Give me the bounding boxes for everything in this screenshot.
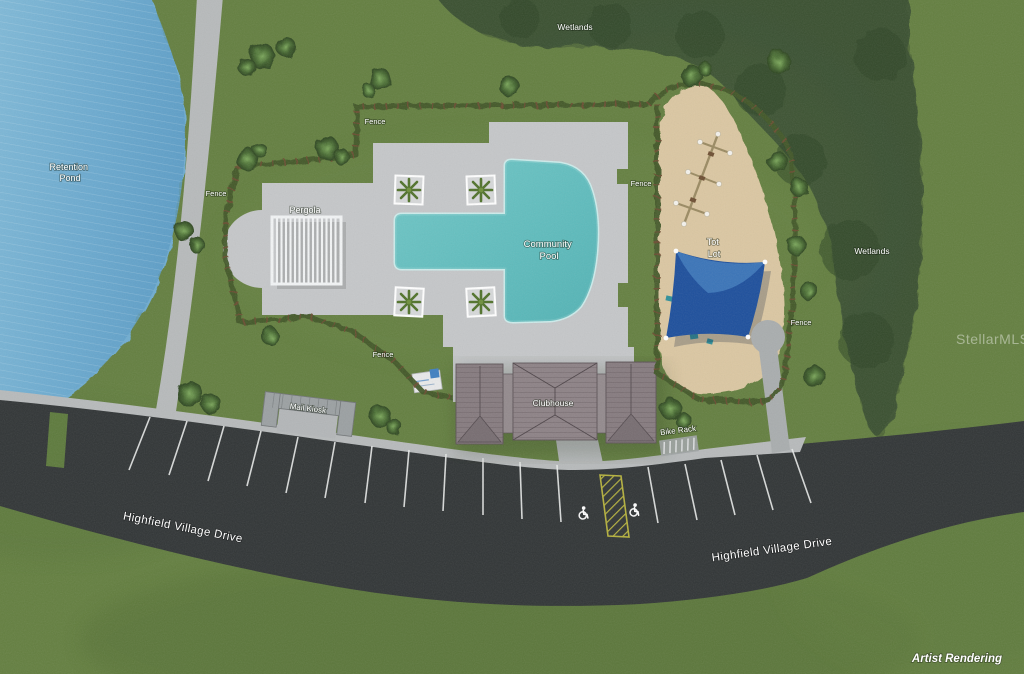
fence-label: Fence [373,350,394,359]
pergola-label: Pergola [289,205,320,215]
fence-label: Fence [631,179,652,188]
site-plan-rendering: Wetlands Wetlands Retention Pond Fence F… [0,0,1024,674]
site-plan-canvas: Wetlands Wetlands Retention Pond Fence F… [0,0,1024,674]
artist-rendering-label: Artist Rendering [911,653,1002,665]
texture-overlay [0,0,1024,674]
wetlands-label: Wetlands [854,246,889,256]
fence-label: Fence [365,117,386,126]
wetlands-label: Wetlands [557,22,592,32]
fence-label: Fence [206,189,227,198]
clubhouse-label: Clubhouse [533,398,574,408]
stellar-mls-watermark: StellarMLS [956,331,1024,347]
fence-label: Fence [791,318,812,327]
